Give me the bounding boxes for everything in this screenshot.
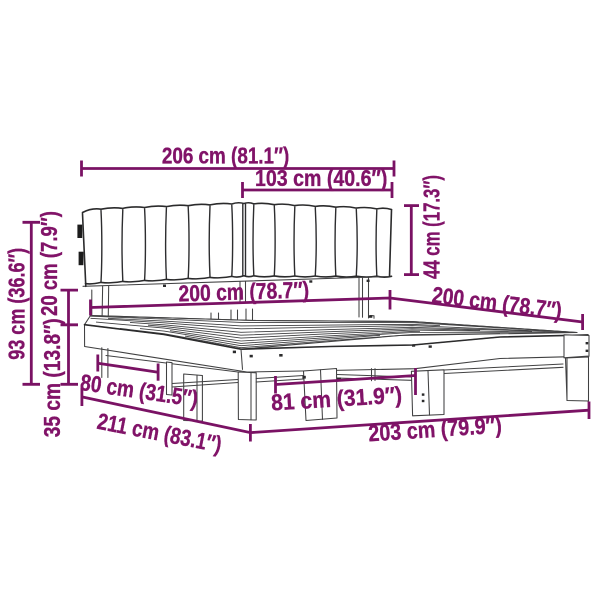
svg-text:93 cm (36.6″): 93 cm (36.6″) (4, 248, 30, 360)
svg-text:200 cm (78.7″): 200 cm (78.7″) (178, 276, 309, 306)
svg-text:44 cm (17.3″): 44 cm (17.3″) (419, 175, 445, 279)
svg-text:103 cm (40.6″): 103 cm (40.6″) (255, 165, 388, 191)
svg-text:20 cm (7.9″): 20 cm (7.9″) (36, 211, 62, 316)
svg-text:35 cm (13.8″): 35 cm (13.8″) (39, 318, 65, 437)
